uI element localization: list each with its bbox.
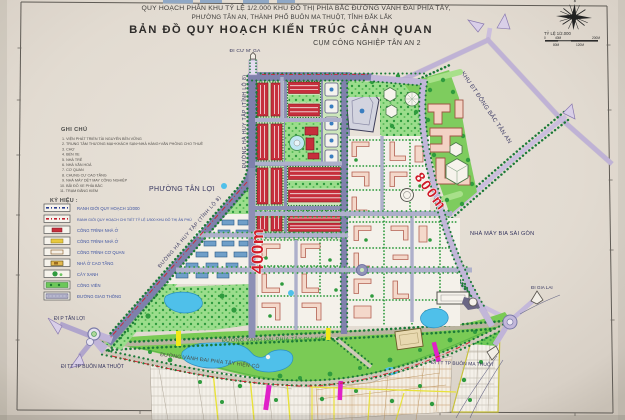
svg-text:CÔNG TRÌNH NHÀ Ở: CÔNG TRÌNH NHÀ Ở [77, 239, 119, 244]
svg-text:PHƯỜNG TÂN AN, THÀNH PHỐ BUÔN: PHƯỜNG TÂN AN, THÀNH PHỐ BUÔN MA THUỘT, … [192, 13, 393, 21]
svg-text:GHI CHÚ: GHI CHÚ [61, 126, 87, 133]
svg-text:4. BẾN XE: 4. BẾN XE [62, 152, 80, 157]
svg-text:CÂY XANH: CÂY XANH [77, 272, 98, 277]
svg-text:NHÀ MÁY BIA SÀI GÒN: NHÀ MÁY BIA SÀI GÒN [470, 230, 534, 237]
svg-text:CÔNG VIÊN: CÔNG VIÊN [77, 283, 101, 288]
svg-text:ĐI CƯ M' GA: ĐI CƯ M' GA [230, 48, 261, 54]
svg-text:120M: 120M [576, 43, 584, 47]
svg-text:400m: 400m [248, 229, 267, 274]
svg-text:BẢN ĐỒ QUY HOẠCH KIẾN TRÚC CẢN: BẢN ĐỒ QUY HOẠCH KIẾN TRÚC CẢNH QUAN [129, 23, 433, 36]
svg-text:ĐI GIA LAI: ĐI GIA LAI [531, 285, 553, 290]
svg-text:ĐI TT TP BUÔN MA THUỘT: ĐI TT TP BUÔN MA THUỘT [61, 363, 124, 370]
svg-text:1. VIỆN PHÁT TRIỂN TÀI NGUYÊ: 1. VIỆN PHÁT TRIỂN TÀI NGUYÊN BỀN VỮNG [62, 136, 142, 141]
svg-text:3. CHỢ: 3. CHỢ [62, 147, 75, 151]
svg-text:6. NHÀ VĂN HOÁ: 6. NHÀ VĂN HOÁ [62, 163, 92, 167]
svg-text:CÔNG TRÌNH NHÀ Ở: CÔNG TRÌNH NHÀ Ở [77, 228, 119, 233]
svg-text:9. NHÀ MÁY DỆT MAY CÔNG NGHI: 9. NHÀ MÁY DỆT MAY CÔNG NGHIỆP [62, 178, 128, 183]
svg-text:7. CƠ QUAN: 7. CƠ QUAN [62, 168, 84, 172]
svg-text:PHƯỜNG TÂN LỢI: PHƯỜNG TÂN LỢI [149, 184, 215, 193]
svg-text:KÝ HIỆU :: KÝ HIỆU : [50, 196, 78, 204]
svg-text:NHÀ Ở CAO TẦNG: NHÀ Ở CAO TẦNG [77, 261, 114, 266]
svg-text:11. TRẠM ĐĂNG KIỂM: 11. TRẠM ĐĂNG KIỂM [60, 188, 98, 193]
svg-text:10. BÃI ĐỖ XE PHÍA BẮC: 10. BÃI ĐỖ XE PHÍA BẮC [60, 183, 103, 188]
svg-text:CỤM CÔNG NGHIỆP TÂN AN 2: CỤM CÔNG NGHIỆP TÂN AN 2 [313, 38, 421, 47]
svg-text:0: 0 [544, 36, 546, 40]
svg-text:RANH GIỚI QUY HOẠCH 1/2000: RANH GIỚI QUY HOẠCH 1/2000 [77, 206, 140, 211]
svg-text:8. CHUNG CƯ CAO TẦNG: 8. CHUNG CƯ CAO TẦNG [62, 173, 107, 177]
svg-text:5. NHÀ TRẺ: 5. NHÀ TRẺ [62, 157, 83, 162]
svg-text:200M: 200M [592, 36, 600, 40]
svg-text:80M: 80M [553, 43, 560, 47]
svg-text:ĐƯỜNG GIAO THÔNG: ĐƯỜNG GIAO THÔNG [77, 294, 121, 299]
svg-text:RANH GIỚI QUY HOẠCH CHI TIẾT T: RANH GIỚI QUY HOẠCH CHI TIẾT TỶ LỆ 1/500… [77, 217, 192, 222]
svg-text:ĐI P TÂN LỢI: ĐI P TÂN LỢI [54, 315, 85, 322]
svg-text:40M: 40M [555, 36, 562, 40]
svg-text:2. TRUNG TÂM THƯƠNG MẠI+KHÁC: 2. TRUNG TÂM THƯƠNG MẠI+KHÁCH SẠN+NHÀ HÀ… [62, 141, 204, 146]
svg-text:CÔNG TRÌNH CƠ QUAN: CÔNG TRÌNH CƠ QUAN [77, 250, 124, 255]
svg-text:QUY HOẠCH PHÂN KHU TỶ LỆ 1/2.0: QUY HOẠCH PHÂN KHU TỶ LỆ 1/2.000 KHU ĐÔ … [142, 3, 451, 12]
svg-text:ĐƯỜNG HÀ HUY TẬP (TỈNH LỘ 8): ĐƯỜNG HÀ HUY TẬP (TỈNH LỘ 8) [241, 75, 248, 168]
